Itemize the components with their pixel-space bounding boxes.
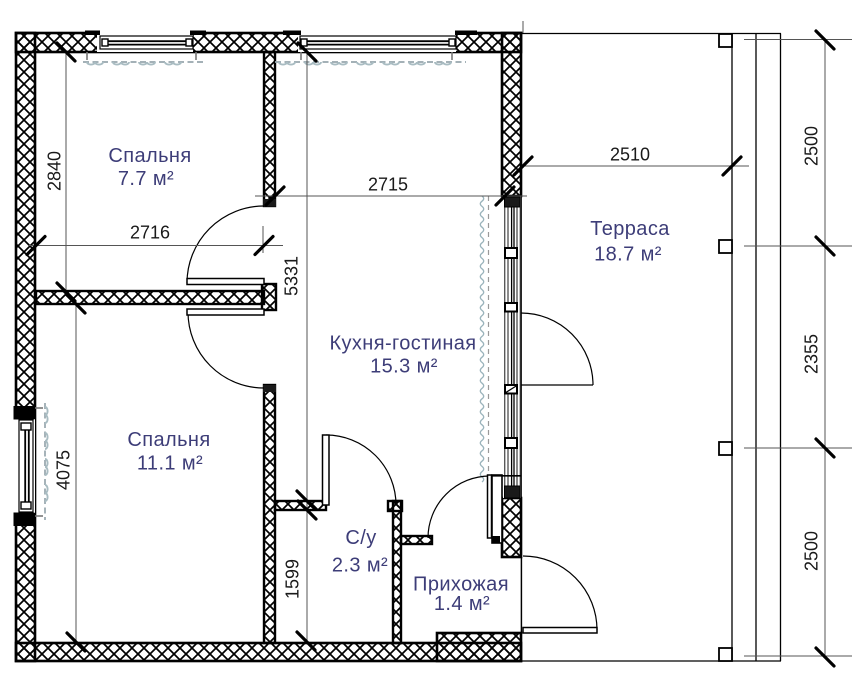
svg-text:18.7 м²: 18.7 м²: [594, 244, 662, 266]
svg-text:Спальня: Спальня: [108, 145, 191, 167]
svg-text:2355: 2355: [801, 334, 821, 374]
svg-text:15.3 м²: 15.3 м²: [370, 356, 438, 378]
svg-text:2510: 2510: [610, 144, 650, 164]
svg-text:7.7 м²: 7.7 м²: [118, 168, 174, 190]
svg-text:Терраса: Терраса: [590, 218, 670, 240]
svg-text:4075: 4075: [53, 450, 73, 490]
svg-text:1599: 1599: [282, 559, 302, 599]
svg-text:2500: 2500: [801, 531, 821, 571]
svg-text:11.1 м²: 11.1 м²: [137, 453, 203, 475]
svg-text:2716: 2716: [130, 222, 170, 242]
svg-text:2840: 2840: [44, 151, 64, 191]
svg-text:5331: 5331: [281, 256, 301, 296]
svg-text:1.4 м²: 1.4 м²: [434, 593, 490, 615]
svg-text:Спальня: Спальня: [127, 429, 210, 451]
svg-text:С/у: С/у: [345, 527, 376, 549]
svg-text:2.3 м²: 2.3 м²: [332, 555, 388, 577]
svg-text:Кухня-гостиная: Кухня-гостиная: [329, 333, 476, 355]
svg-text:2500: 2500: [801, 126, 821, 166]
svg-text:2715: 2715: [368, 174, 408, 194]
